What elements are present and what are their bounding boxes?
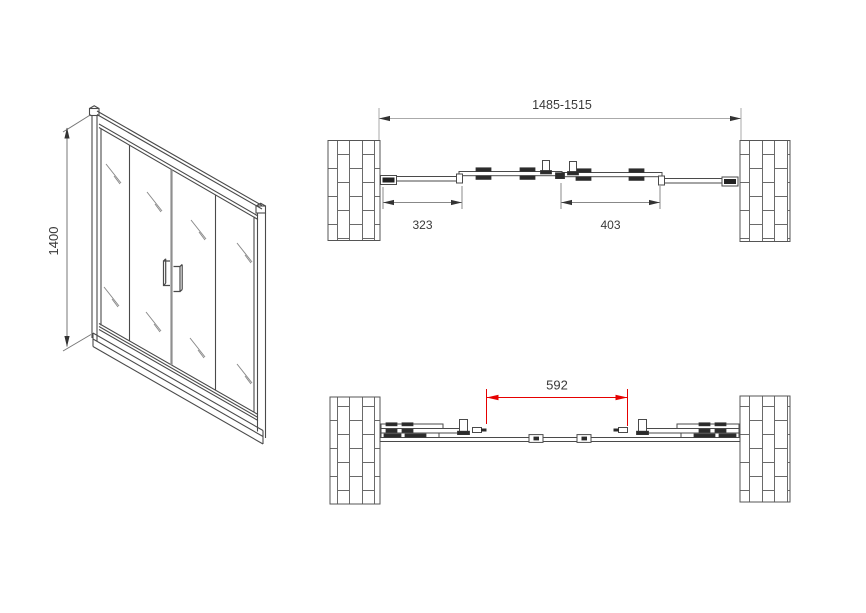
fixed-panel-left	[396, 177, 458, 182]
brick-wall-top-right	[740, 141, 790, 242]
right-knob	[619, 428, 628, 433]
opening-dimension-label: 592	[546, 378, 568, 393]
center-junction	[556, 173, 565, 179]
brick-wall-bottom-left	[330, 397, 380, 504]
door-track	[380, 438, 740, 442]
brick-wall-bottom-right	[740, 396, 790, 502]
overall-width-label: 1485-1515	[532, 98, 592, 112]
drawing-canvas: 1400 1485-1515	[0, 0, 866, 613]
fixed-panel-right	[664, 179, 724, 184]
height-dimension-label: 1400	[46, 227, 61, 256]
panel-end-cap-right	[659, 176, 665, 185]
fixed-panel-dimension-label: 323	[412, 218, 432, 232]
technical-drawing: 1400 1485-1515	[0, 0, 866, 613]
left-knob	[473, 428, 482, 433]
panel-end-cap-left	[457, 174, 463, 183]
door-panel-dimension-label: 403	[600, 218, 620, 232]
brick-wall-top-left	[328, 141, 380, 241]
